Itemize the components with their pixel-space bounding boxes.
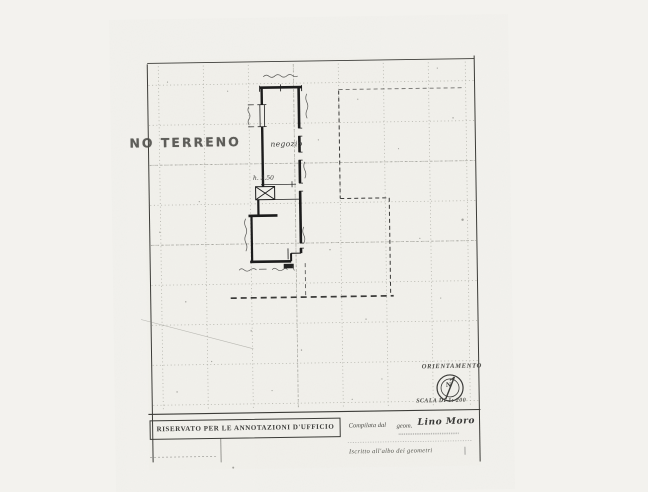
orientation-title: ORIENTAMENTO [422,362,482,370]
room-label-negozio: negozio [270,139,302,148]
scanned-floorplan-page: NO TERRENO negozio h. 3.50 ORIENTAMENTO … [0,0,648,492]
scale-label: SCALA DI 1: 200 [416,398,466,405]
registration-note: Iscritto all'albo dei geometri [349,447,433,455]
room-height-note: h. 3.50 [253,175,274,182]
floor-label: NO TERRENO [129,134,241,151]
compiler-signature: Lino Moro [417,416,475,428]
scan-sheet: NO TERRENO negozio h. 3.50 ORIENTAMENTO … [0,0,648,492]
compiled-by-prefix: Compilata dal [349,422,386,430]
compass-north-letter: N [446,381,451,389]
floor-plan-drawing [0,0,648,492]
paper-noise [143,56,481,471]
compiled-by-title: geom. [397,423,413,430]
